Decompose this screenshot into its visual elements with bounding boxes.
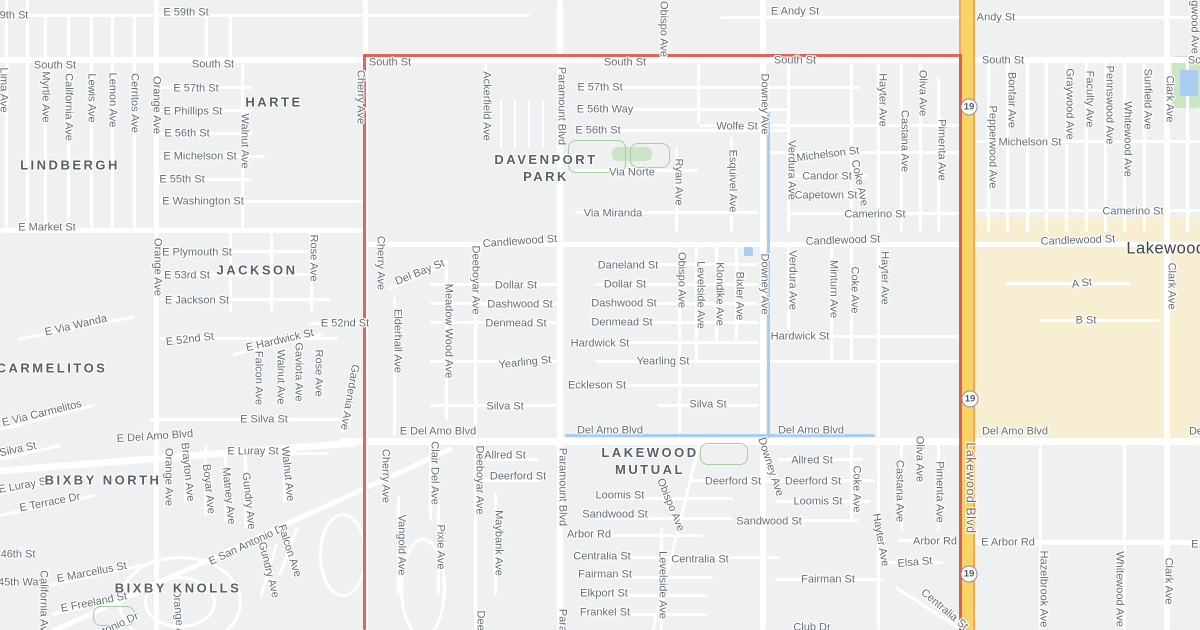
street-label: Dollar St	[495, 281, 537, 292]
park-outline	[630, 143, 670, 168]
street-label: Fairman St	[578, 570, 632, 581]
street-label: South St	[982, 56, 1024, 67]
street-label: Rose Ave	[308, 235, 319, 282]
street-label: Sandwood St	[736, 517, 801, 528]
street-label: Vangold Ave	[396, 515, 407, 576]
street-label: Silva St	[486, 402, 523, 413]
street-label: Orange Ave	[152, 238, 163, 296]
street-label: Arbor Rd	[913, 537, 957, 548]
street-label: E 57th St	[577, 83, 622, 94]
street-label: Sandwood St	[582, 510, 647, 521]
neighborhood-label: JACKSON	[216, 263, 297, 280]
neighborhood-label: BIXBY KNOLLS	[115, 581, 242, 598]
street-label: E 56th Way	[577, 105, 633, 116]
street-label: Lemon Ave	[107, 73, 118, 128]
street-label: E Jackson St	[165, 296, 229, 307]
road	[340, 438, 1200, 445]
street-label: Boyar Ave	[200, 464, 216, 515]
street-label: Del Amo Blvd	[577, 426, 643, 437]
street-label: Castana Ave	[899, 110, 910, 172]
street-label: E 53rd St	[164, 271, 210, 282]
road	[528, 100, 530, 148]
street-label: Pimenta Ave	[934, 461, 945, 523]
street-label: Deeboyar Ave	[470, 246, 481, 315]
street-label: Pepperwood Ave	[987, 106, 998, 189]
street-label: Dashwood St	[591, 299, 656, 310]
street-label: Hayter Ave	[879, 251, 890, 305]
street-label: Coke Ave	[849, 267, 860, 314]
street-label: Daneland St	[598, 261, 659, 272]
street-label: Yearling St	[637, 357, 690, 368]
street-label: Graywood Ave	[1064, 68, 1075, 139]
street-label: Bonfair Ave	[1006, 72, 1017, 128]
street-label: Paramount Blvd	[557, 609, 568, 630]
street-label: Denmead St	[591, 318, 652, 329]
street-label: Candor St	[802, 172, 852, 183]
street-label: E 57th St	[173, 84, 218, 95]
street-label: Wolfe St	[716, 122, 757, 133]
street-label: Deeboyar Ave	[475, 611, 486, 630]
street-label: Sunfield Ave	[1142, 69, 1153, 130]
highway-19-shield: 19	[962, 391, 979, 408]
street-label: Capetown St	[795, 191, 858, 202]
street-label: Lima Ave	[0, 67, 9, 112]
street-label: E Michelson St	[163, 152, 236, 163]
street-label: Ackerfield Ave	[481, 71, 492, 141]
street-label: Elkport St	[580, 589, 628, 600]
road	[5, 0, 8, 228]
neighborhood-label: CARMELITOS	[0, 361, 107, 378]
street-label: Andy St	[977, 13, 1016, 24]
road	[514, 100, 516, 148]
street-label: Gardenia Ave	[338, 363, 360, 430]
street-label: Via Norte	[609, 168, 655, 179]
street-label: Clark Ave	[1164, 76, 1175, 123]
street-label: Levelside Ave	[657, 551, 668, 619]
street-label: Oliva Ave	[917, 70, 928, 116]
street-label: Yearling St	[498, 355, 552, 371]
street-label: Oliva Ave	[914, 436, 925, 482]
street-label: Allred St	[791, 456, 833, 467]
street-label: Bixler Ave	[734, 272, 745, 321]
street-label: Rose Ave	[313, 350, 324, 397]
street-label: California Ave	[38, 570, 49, 630]
street-label: California Ave	[63, 73, 74, 141]
street-label: Cherry Ave	[375, 236, 386, 290]
street-label: Via Miranda	[584, 209, 643, 220]
street-label: 46th St	[1, 550, 36, 561]
street-label: South St	[192, 60, 234, 71]
street-label: E 56th St	[575, 126, 620, 137]
street-label: E 55th St	[159, 175, 204, 186]
road	[0, 14, 530, 17]
street-label: Fairman St	[801, 575, 855, 586]
street-label: Meadow Wood Ave	[443, 284, 454, 378]
street-label: E 59th St	[163, 8, 208, 19]
street-label: Hazelbrook Ave	[1038, 551, 1049, 628]
street-label: Dashwood St	[487, 300, 552, 311]
street-label: Cerritos Ave	[129, 73, 140, 133]
street-label: Paramount Blvd	[556, 67, 567, 145]
street-label: Deerford St	[490, 472, 546, 483]
road	[1005, 282, 1130, 285]
street-label: E Terrace Dr	[19, 492, 82, 515]
street-label: Coke Ave	[851, 466, 862, 513]
street-label: South St	[369, 58, 411, 69]
neighborhood-label: BIXBY NORTH	[45, 473, 162, 490]
street-label: Michelson St	[999, 138, 1062, 149]
street-label: Loomis St	[596, 491, 645, 502]
street-label: Maybank Ave	[493, 510, 504, 576]
street-label: Downey Ave	[759, 74, 770, 135]
street-label: Castana Ave	[894, 460, 905, 522]
street-label: 9th St	[0, 11, 28, 22]
street-label: E 56th St	[164, 129, 209, 140]
road	[595, 534, 703, 537]
ring-road	[319, 513, 367, 597]
street-label: Paramount Blvd	[557, 448, 568, 526]
street-label: E Washington St	[162, 197, 244, 208]
street-label: Clair Del Ave	[429, 441, 440, 504]
street-label: Elderhall Ave	[392, 309, 403, 373]
street-label: Obispo Ave	[658, 1, 669, 57]
street-label: Eckleson St	[568, 381, 626, 392]
street-label: Deerford St	[785, 477, 841, 488]
street-label: Allred St	[484, 451, 526, 462]
street-label: Whitewood Ave	[1114, 551, 1125, 627]
street-label: Myrtle Ave	[40, 71, 51, 122]
street-label: Del Amo Blvd	[778, 426, 844, 437]
street-label: Pimenta Ave	[936, 119, 947, 181]
highway-19-shield: 19	[961, 99, 978, 116]
street-label: Orange Ave	[151, 76, 162, 134]
street-label: Esquivel Ave	[727, 150, 738, 213]
street-label: Elsa St	[897, 556, 933, 570]
street-label: Obispo Ave	[676, 252, 687, 308]
street-label: Deeboyar Ave	[474, 446, 485, 515]
street-label: Gaviota Ave	[293, 342, 304, 401]
street-label: Whitewood Ave	[1122, 101, 1133, 177]
street-label: Levelside Ave	[695, 261, 706, 329]
street-label: gwood Ave	[1189, 0, 1200, 54]
street-label: E Andy St	[771, 7, 819, 18]
street-label: Candlewood St	[482, 234, 557, 250]
street-label: Downey Ave	[759, 254, 770, 315]
street-label: Gundry Ave	[240, 472, 257, 530]
street-label: Arbor Rd	[567, 530, 611, 541]
road	[229, 14, 232, 58]
water-channel	[1180, 70, 1198, 96]
street-label: Cherry Ave	[355, 70, 366, 124]
street-label: Hardwick St	[571, 339, 630, 350]
street-label: South St	[34, 61, 76, 72]
street-label: E 52nd St	[321, 319, 369, 330]
street-label: E Arbor Rd	[981, 538, 1035, 549]
street-label: Denmead St	[485, 319, 546, 330]
map-canvas[interactable]: 9th StE 59th StSouth StSouth StSouth StS…	[0, 0, 1200, 630]
street-label: Clark Ave	[1166, 263, 1177, 310]
street-label: E Del Amo Blvd	[400, 427, 476, 438]
street-label: Hayter Ave	[870, 513, 890, 568]
street-label: B St	[1076, 316, 1097, 327]
street-label: Hayter Ave	[877, 73, 888, 127]
street-label: Del Amo Blvd	[982, 427, 1048, 438]
street-label: Cherry Ave	[380, 449, 391, 503]
street-label: Deerford St	[705, 477, 761, 488]
street-label: E Via Carmelitos	[1, 399, 83, 429]
street-label: Hardwick St	[771, 332, 830, 343]
water-channel	[744, 247, 753, 256]
street-label: E Via Wanda	[44, 313, 108, 338]
road	[542, 100, 544, 148]
street-label: Centralia St	[573, 552, 630, 563]
street-label: South St	[604, 58, 646, 69]
road	[1040, 319, 1160, 322]
neighborhood-label: LAKEWOOD MUTUAL	[601, 445, 698, 479]
neighborhood-label: HARTE	[245, 95, 302, 112]
street-label: E Silva St	[240, 415, 288, 426]
city-boundary-line	[959, 54, 962, 630]
street-label: E Luray St	[227, 447, 278, 458]
road	[26, 0, 29, 228]
street-label: Dollar St	[604, 280, 646, 291]
street-label: Lewis Ave	[86, 73, 97, 122]
street-label: Faculty Ave	[1084, 71, 1095, 128]
street-label: E Market St	[18, 223, 75, 234]
street-label: Silva St	[689, 400, 726, 411]
street-label: E Plymouth St	[162, 248, 232, 259]
street-label: South St	[774, 56, 816, 67]
street-label: Orange Ave	[163, 448, 174, 506]
street-label: E Luray St	[0, 476, 50, 496]
street-label: E Phillips St	[164, 107, 223, 118]
neighborhood-label: DAVENPORT PARK	[494, 152, 597, 186]
road	[697, 57, 700, 124]
street-label: Klondike Ave	[714, 262, 725, 325]
street-label: Obispo Ave	[654, 477, 685, 533]
road	[205, 14, 208, 58]
street-label: Minturn Ave	[828, 260, 839, 318]
street-label: Pennswood Ave	[1104, 66, 1115, 145]
street-label: Del Amo Blvd	[1189, 427, 1200, 438]
street-label: Walnut Ave	[239, 113, 250, 168]
street-label: Pixie Ave	[435, 524, 446, 569]
street-label: Matney Ave	[220, 467, 237, 525]
street-label: Frankel St	[580, 608, 630, 619]
street-label: Loomis St	[794, 497, 843, 508]
street-label: Verdura Ave	[786, 140, 797, 200]
park-outline	[700, 443, 748, 465]
street-label: Club Dr	[793, 623, 830, 630]
street-label: South St	[1188, 56, 1200, 67]
neighborhood-label: LINDBERGH	[20, 158, 120, 175]
street-label: Falcon Ave	[253, 351, 264, 405]
street-label: Camerino St	[844, 210, 905, 221]
street-label: Lakewood Blvd	[964, 442, 977, 533]
city-boundary-line	[363, 54, 366, 630]
street-label: E 52nd St	[165, 332, 214, 349]
street-label: Centralia St	[671, 555, 728, 566]
city-label: Lakewood	[1126, 240, 1200, 259]
street-label: Clark Ave	[1163, 558, 1174, 605]
highway-19-shield: 19	[961, 566, 978, 583]
road	[500, 100, 502, 148]
street-label: Camerino St	[1102, 207, 1163, 218]
street-label: Ryan Ave	[673, 159, 684, 206]
street-label: Walnut Ave	[275, 349, 286, 404]
street-label: E Arbor Rd	[1191, 540, 1200, 551]
street-label: Verdura Ave	[787, 250, 798, 310]
